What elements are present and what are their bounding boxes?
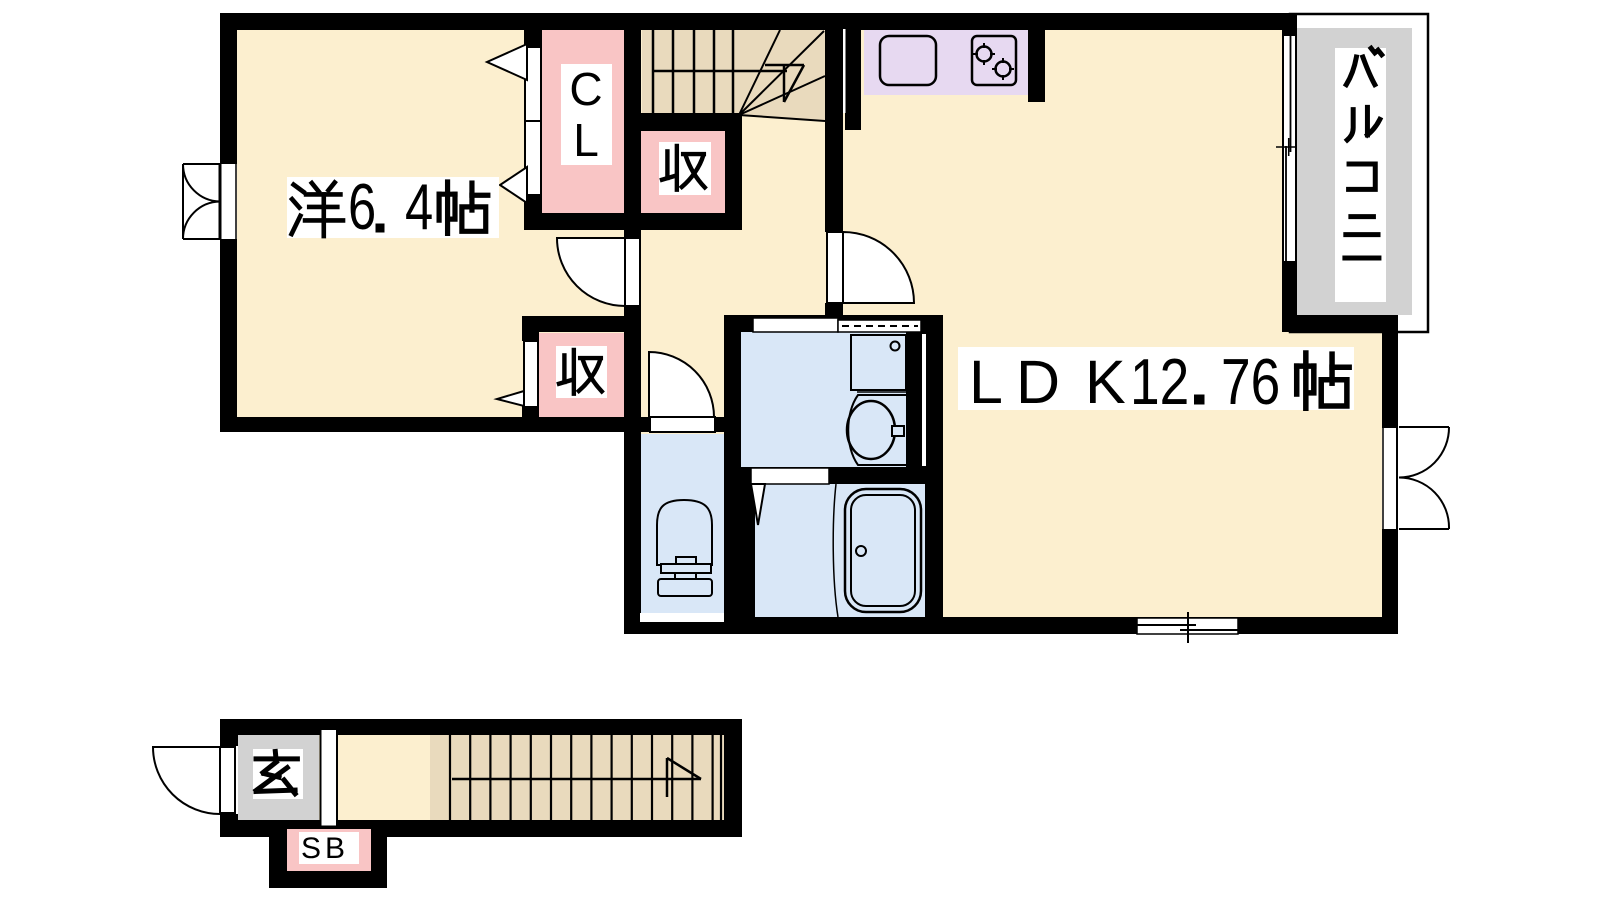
svg-text:C: C xyxy=(569,63,602,115)
svg-text:K: K xyxy=(1085,348,1126,416)
svg-text:L: L xyxy=(969,348,1003,416)
svg-text:6: 6 xyxy=(348,171,376,243)
svg-text:L: L xyxy=(573,114,599,166)
svg-text:D: D xyxy=(1016,348,1060,416)
svg-text:76: 76 xyxy=(1221,345,1280,418)
svg-text:12: 12 xyxy=(1130,345,1189,418)
svg-text:4: 4 xyxy=(405,171,433,243)
svg-text:SB: SB xyxy=(301,832,349,865)
